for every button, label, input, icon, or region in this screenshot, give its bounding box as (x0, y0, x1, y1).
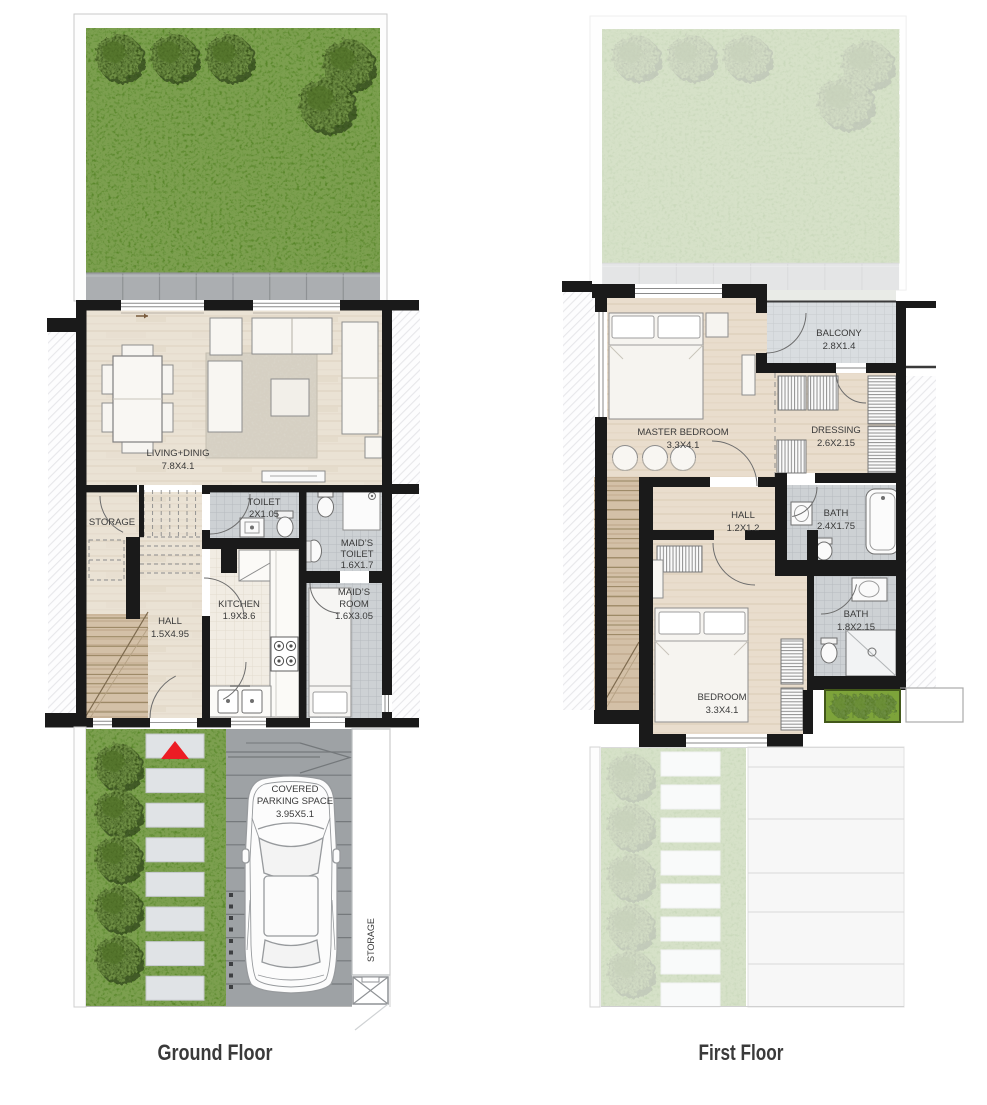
svg-text:MAID’S: MAID’S (341, 538, 373, 549)
svg-text:3.3X4.1: 3.3X4.1 (667, 440, 700, 451)
svg-text:HALL: HALL (731, 510, 755, 521)
svg-text:MAID’S: MAID’S (338, 587, 370, 598)
svg-text:2.4X1.75: 2.4X1.75 (817, 521, 855, 532)
svg-text:BATH: BATH (824, 508, 849, 519)
svg-text:1.6X1.7: 1.6X1.7 (341, 560, 374, 571)
svg-text:1.6X3.05: 1.6X3.05 (335, 611, 373, 622)
svg-text:TOILET: TOILET (340, 549, 373, 560)
svg-text:3.3X4.1: 3.3X4.1 (706, 705, 739, 716)
svg-text:KITCHEN: KITCHEN (218, 599, 260, 610)
svg-text:BALCONY: BALCONY (816, 328, 862, 339)
svg-text:2X1.05: 2X1.05 (249, 509, 279, 520)
svg-text:DRESSING: DRESSING (811, 425, 861, 436)
svg-text:1.8X2.15: 1.8X2.15 (837, 622, 875, 633)
svg-text:HALL: HALL (158, 616, 182, 627)
svg-text:STORAGE: STORAGE (366, 918, 376, 962)
svg-text:Ground Floor: Ground Floor (158, 1040, 273, 1065)
svg-text:2.6X2.15: 2.6X2.15 (817, 438, 855, 449)
svg-text:COVERED: COVERED (272, 784, 319, 795)
svg-text:PARKING SPACE: PARKING SPACE (257, 796, 333, 807)
svg-text:1.2X1.2: 1.2X1.2 (727, 523, 760, 534)
svg-text:1.5X4.95: 1.5X4.95 (151, 629, 189, 640)
svg-text:First Floor: First Floor (699, 1040, 784, 1065)
svg-text:MASTER BEDROOM: MASTER BEDROOM (637, 427, 728, 438)
svg-text:BATH: BATH (844, 609, 869, 620)
svg-text:BEDROOM: BEDROOM (697, 692, 746, 703)
svg-text:3.95X5.1: 3.95X5.1 (276, 809, 314, 820)
svg-text:2.8X1.4: 2.8X1.4 (823, 341, 856, 352)
svg-text:1.9X3.6: 1.9X3.6 (223, 611, 256, 622)
svg-text:LIVING+DINIG: LIVING+DINIG (146, 448, 209, 459)
svg-text:STORAGE: STORAGE (89, 517, 135, 528)
svg-text:7.8X4.1: 7.8X4.1 (162, 461, 195, 472)
svg-text:TOILET: TOILET (247, 497, 280, 508)
svg-text:ROOM: ROOM (339, 599, 369, 610)
